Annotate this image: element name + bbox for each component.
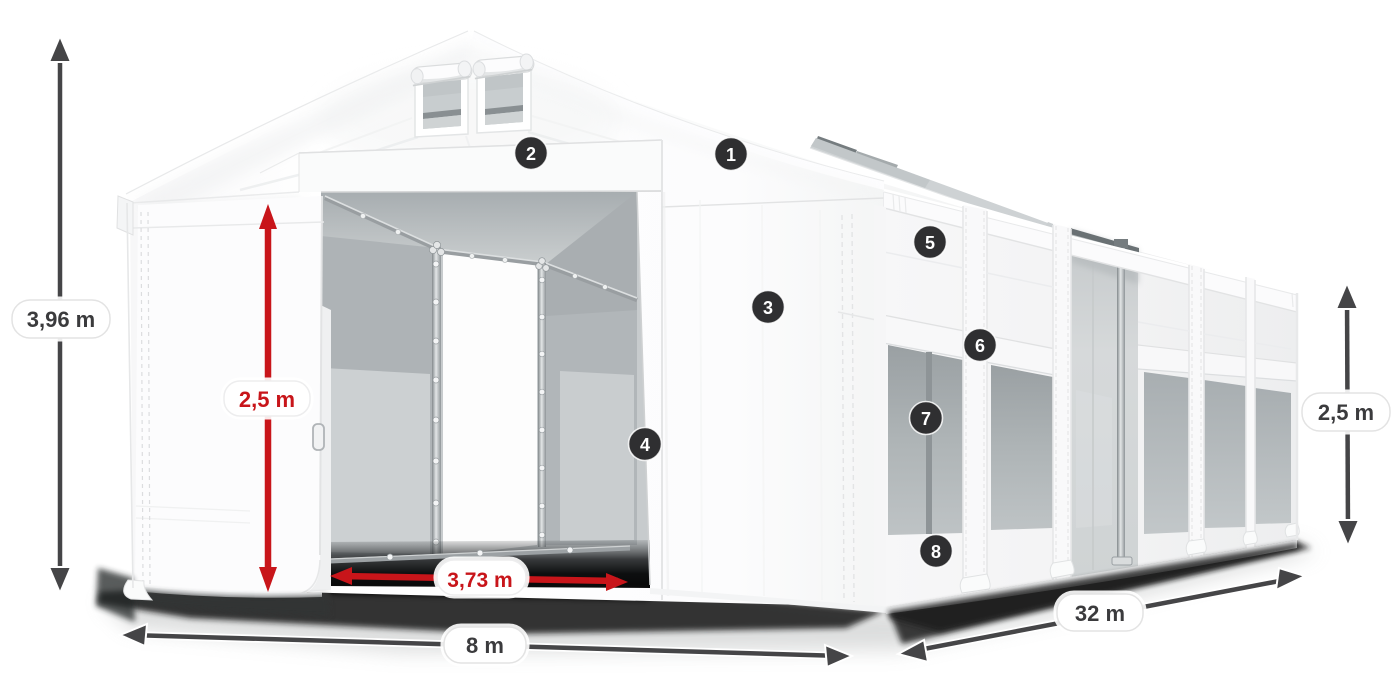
svg-text:1: 1 [726,145,736,165]
svg-text:4: 4 [640,435,650,455]
svg-text:7: 7 [921,409,931,429]
svg-text:32 m: 32 m [1075,601,1125,626]
svg-text:2,5 m: 2,5 m [1318,400,1374,425]
svg-text:2,5 m: 2,5 m [239,387,295,412]
svg-text:5: 5 [925,233,935,253]
svg-text:8 m: 8 m [466,633,504,658]
svg-text:2: 2 [526,144,536,164]
svg-text:8: 8 [931,542,941,562]
svg-text:3,96 m: 3,96 m [27,307,96,332]
svg-text:6: 6 [975,336,985,356]
svg-text:3,73 m: 3,73 m [447,569,512,592]
svg-text:3: 3 [763,298,773,318]
